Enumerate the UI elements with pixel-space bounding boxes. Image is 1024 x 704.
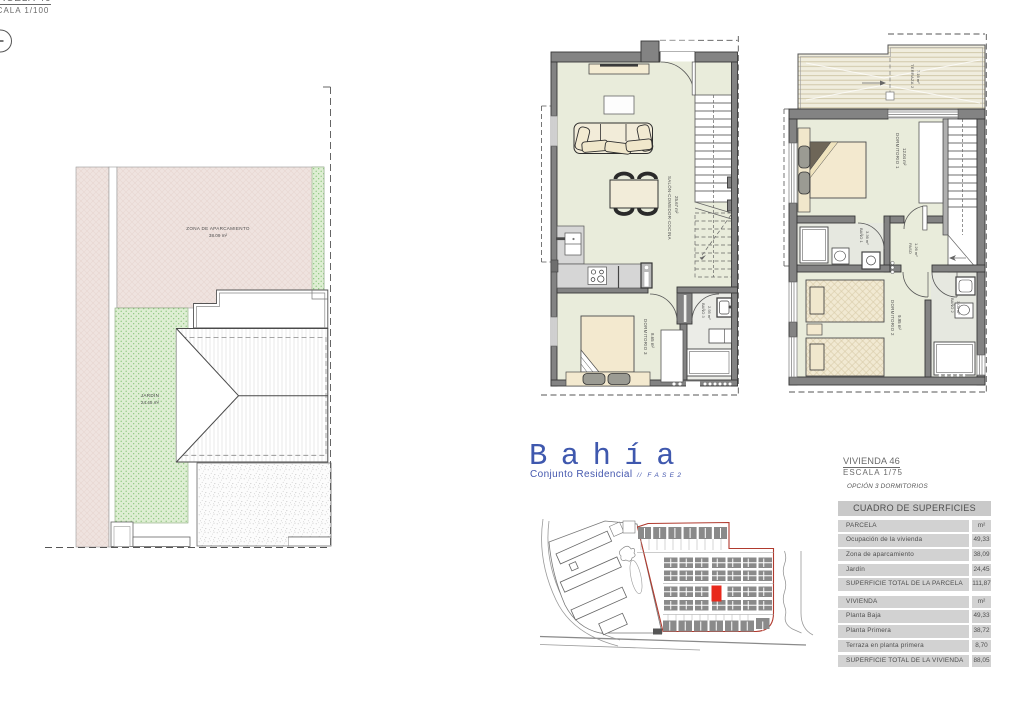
svg-text:12.04 m²: 12.04 m² [902, 148, 907, 166]
svg-text:DORMITORIO 2: DORMITORIO 2 [890, 300, 895, 336]
svg-text:SALÓN-COMEDOR-COCINA: SALÓN-COMEDOR-COCINA [667, 176, 672, 240]
svg-text:BAÑO 2: BAÑO 2 [950, 298, 955, 313]
svg-text:8.65 m²: 8.65 m² [650, 333, 655, 348]
svg-text:25.67 m²: 25.67 m² [674, 196, 679, 214]
svg-text:BAÑO 1: BAÑO 1 [859, 228, 864, 243]
svg-text:JARDÍN: JARDÍN [141, 392, 159, 398]
svg-text:PASO: PASO [908, 243, 913, 254]
svg-text:24.45 m²: 24.45 m² [141, 400, 160, 405]
svg-text:9.95 m²: 9.95 m² [897, 315, 902, 330]
svg-text:DORMITORIO 1: DORMITORIO 1 [895, 133, 900, 169]
svg-text:ZONA DE APARCAMIENTO: ZONA DE APARCAMIENTO [186, 226, 250, 231]
svg-text:2.95 m²: 2.95 m² [707, 306, 712, 320]
svg-text:BAÑO 3: BAÑO 3 [701, 303, 706, 318]
svg-text:TERRAZA 2: TERRAZA 2 [910, 64, 915, 89]
svg-text:3.04 m²: 3.04 m² [956, 301, 961, 315]
svg-text:38.09 m²: 38.09 m² [209, 233, 228, 238]
svg-text:7.16 m²: 7.16 m² [916, 70, 921, 84]
svg-text:3.36 m²: 3.36 m² [865, 231, 870, 245]
svg-text:1.26 m²: 1.26 m² [914, 243, 919, 257]
svg-text:DORMITORIO 3: DORMITORIO 3 [643, 319, 648, 355]
